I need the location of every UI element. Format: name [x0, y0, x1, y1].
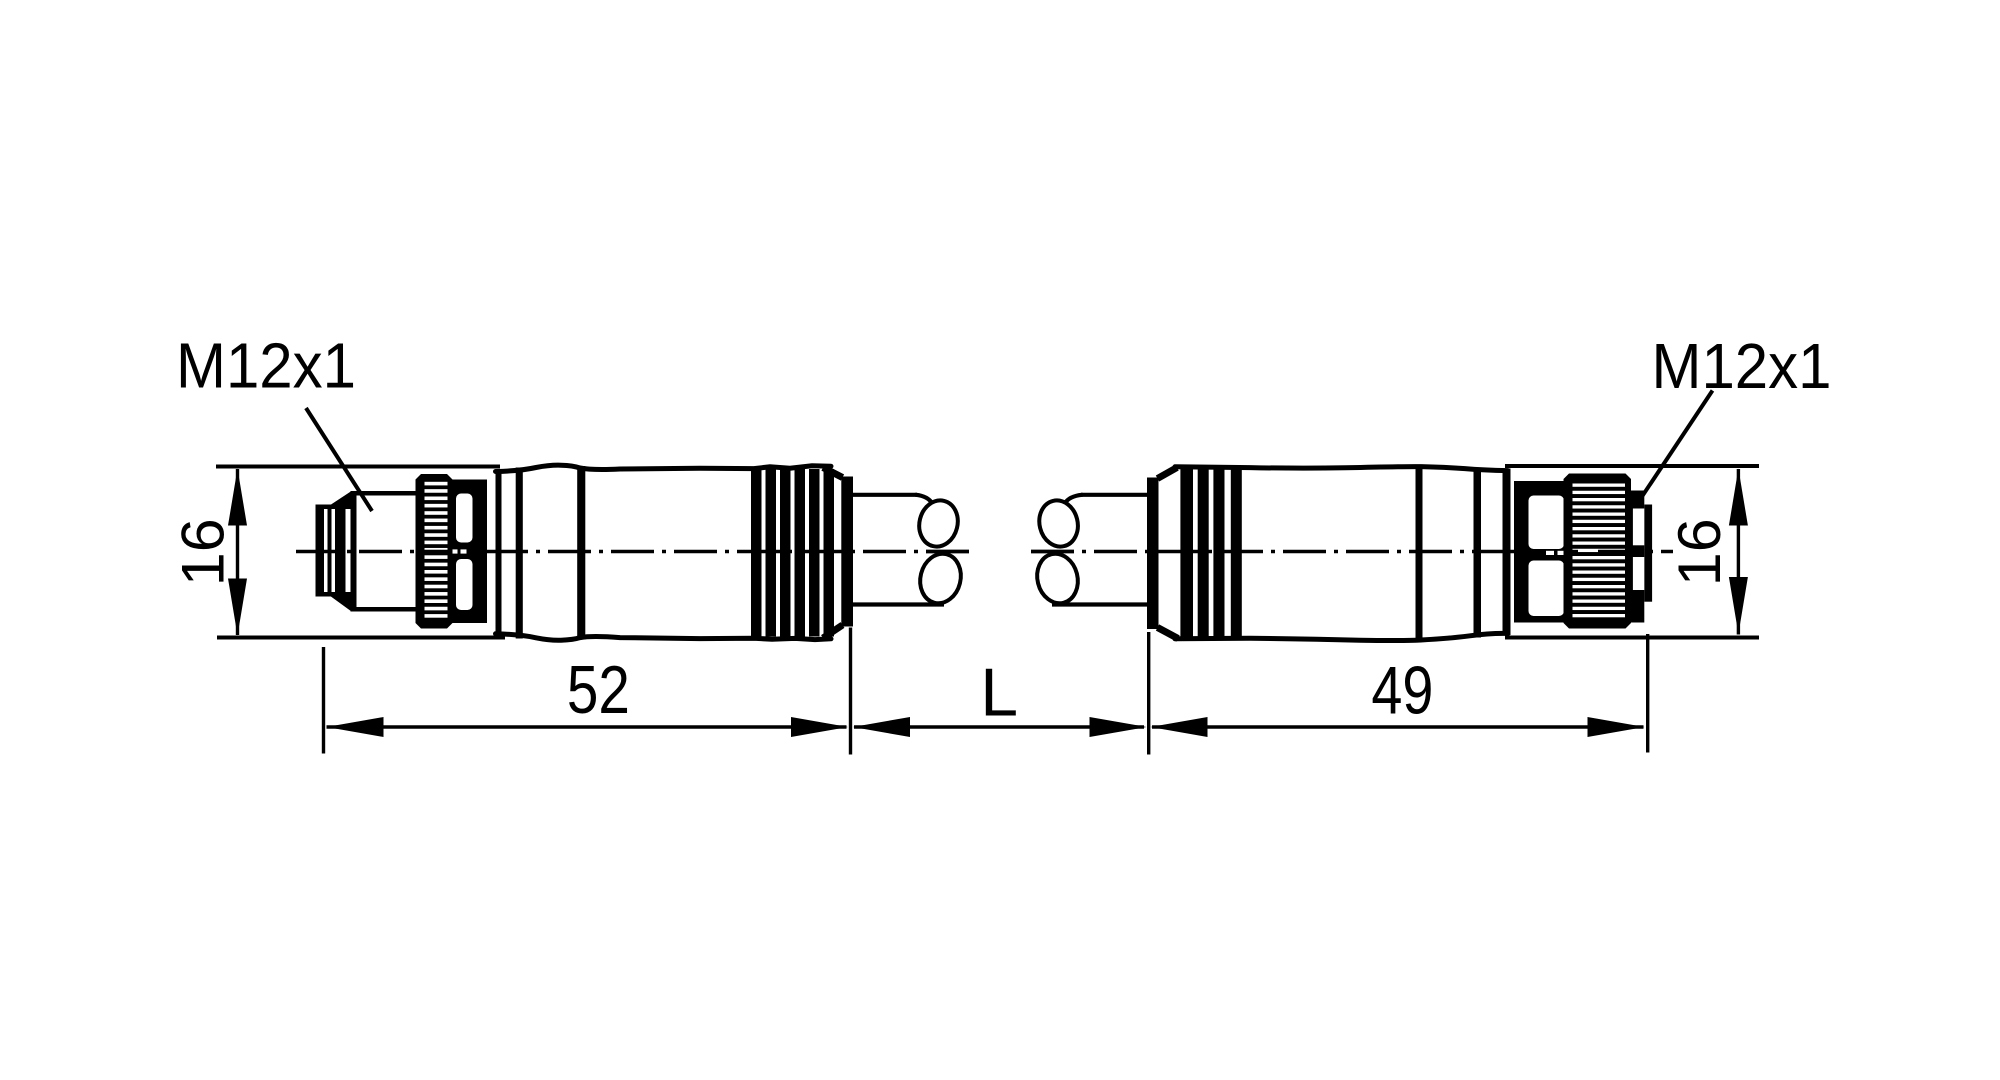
svg-text:16: 16 [170, 518, 237, 586]
svg-text:M12x1: M12x1 [176, 330, 356, 402]
svg-text:16: 16 [1666, 518, 1733, 586]
svg-text:L: L [980, 655, 1018, 731]
svg-text:49: 49 [1371, 653, 1433, 729]
svg-text:M12x1: M12x1 [1652, 330, 1832, 402]
svg-text:52: 52 [567, 652, 630, 728]
